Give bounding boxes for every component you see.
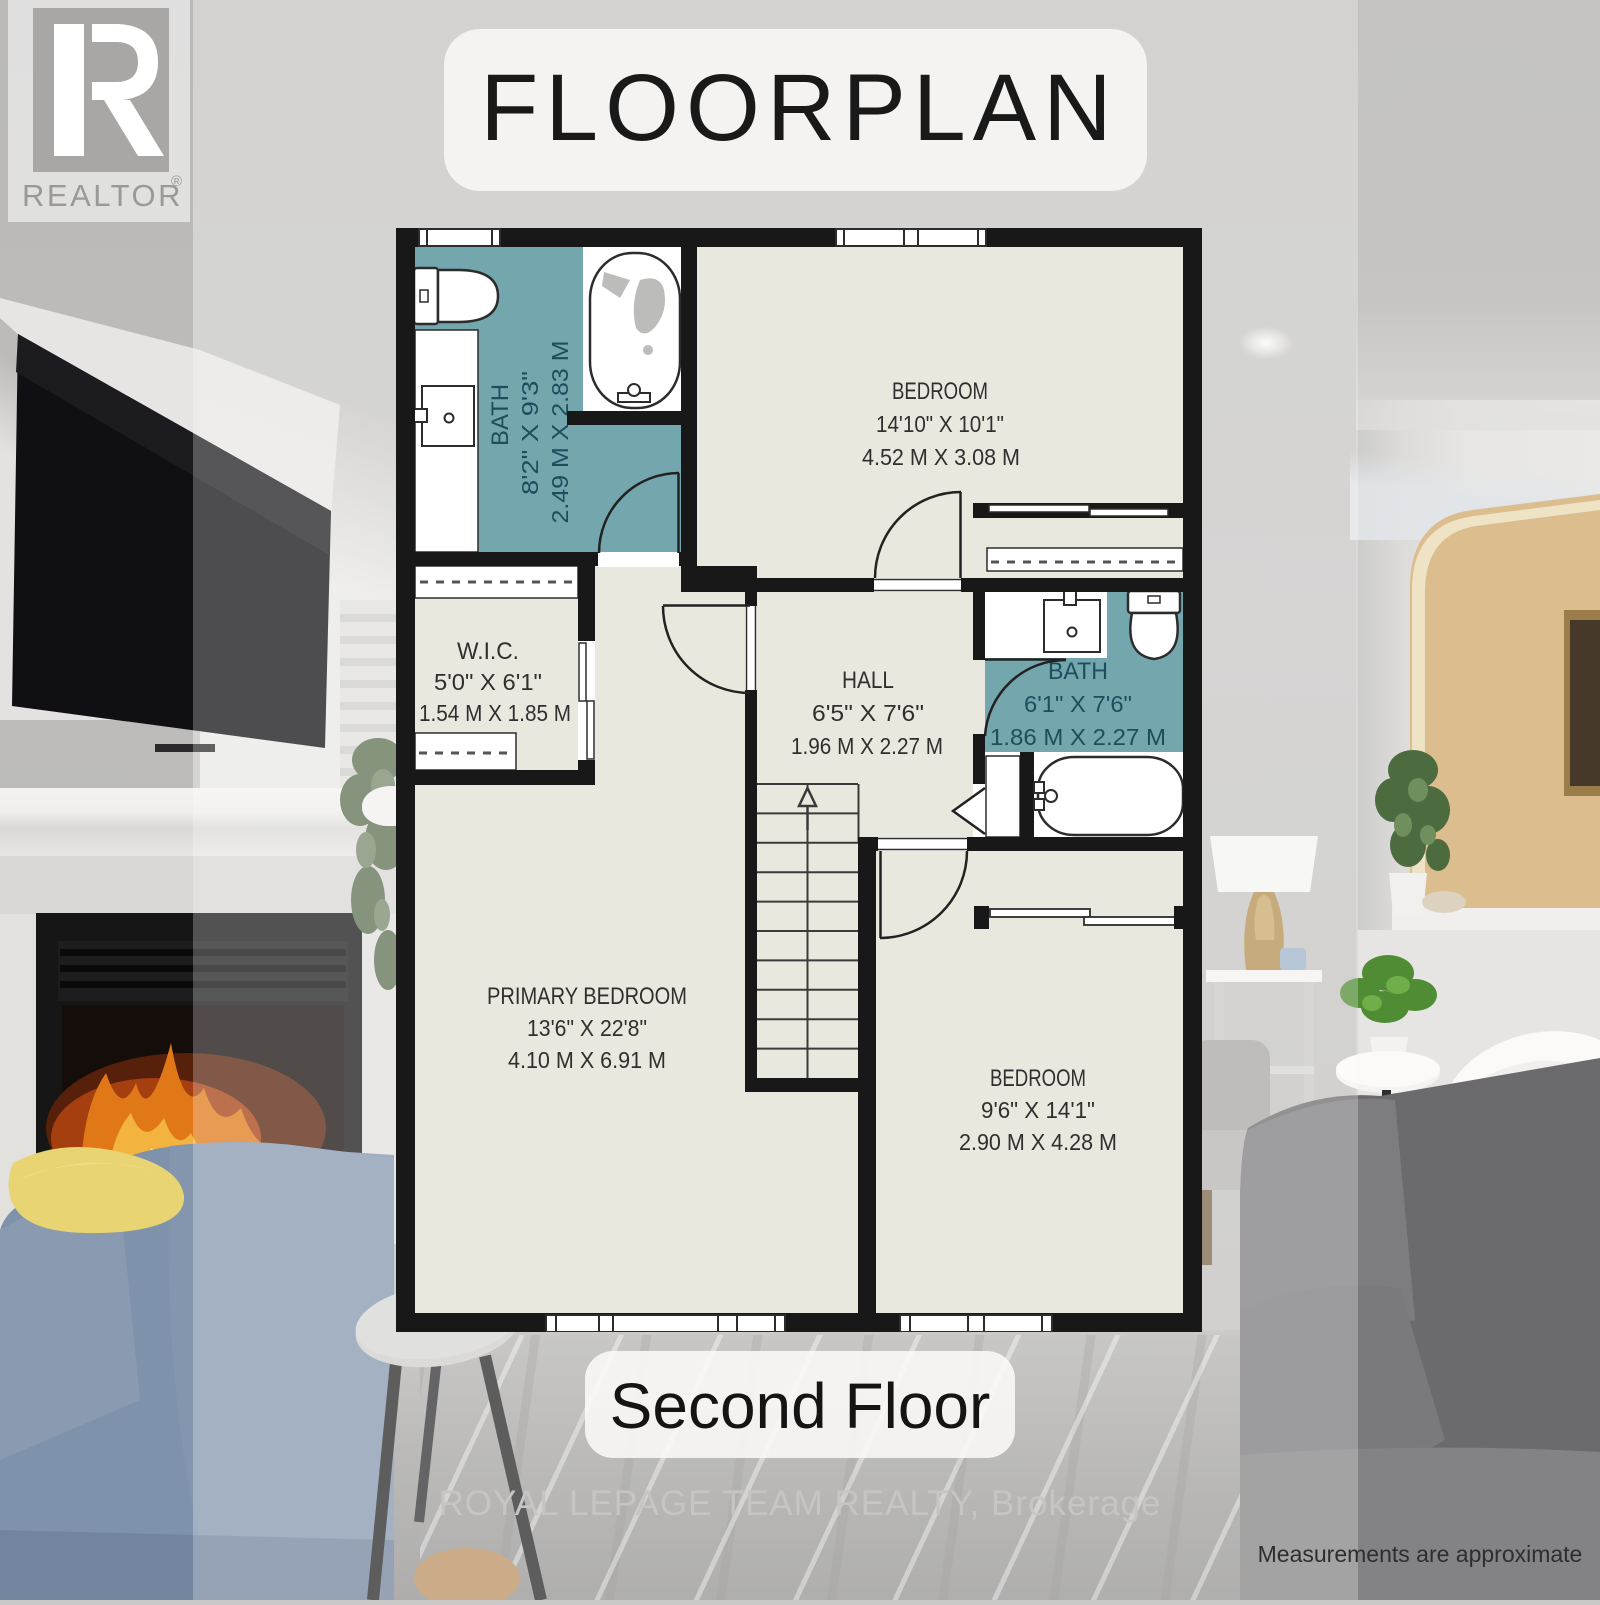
- svg-text:4.10 M X 6.91 M: 4.10 M X 6.91 M: [508, 1047, 666, 1073]
- svg-text:8'2" X 9'3": 8'2" X 9'3": [517, 371, 543, 495]
- svg-text:9'6" X 14'1": 9'6" X 14'1": [981, 1097, 1095, 1123]
- svg-text:HALL: HALL: [842, 667, 894, 694]
- svg-text:BEDROOM: BEDROOM: [892, 378, 988, 405]
- svg-text:BATH: BATH: [487, 384, 514, 446]
- svg-text:6'1" X 7'6": 6'1" X 7'6": [1024, 691, 1132, 717]
- svg-text:13'6" X 22'8": 13'6" X 22'8": [527, 1015, 647, 1041]
- svg-text:BEDROOM: BEDROOM: [990, 1065, 1086, 1092]
- svg-text:5'0" X 6'1": 5'0" X 6'1": [434, 669, 542, 695]
- svg-text:1.96 M X 2.27 M: 1.96 M X 2.27 M: [791, 733, 943, 759]
- svg-text:®: ®: [171, 173, 182, 190]
- svg-text:14'10" X 10'1": 14'10" X 10'1": [876, 411, 1004, 437]
- svg-text:REALTOR: REALTOR: [22, 178, 183, 213]
- svg-text:BATH: BATH: [1048, 658, 1108, 685]
- svg-text:2.49 M X 2.83 M: 2.49 M X 2.83 M: [547, 341, 573, 524]
- svg-text:2.90 M X 4.28 M: 2.90 M X 4.28 M: [959, 1129, 1117, 1155]
- svg-text:1.54 M X 1.85 M: 1.54 M X 1.85 M: [419, 700, 571, 726]
- svg-text:6'5" X 7'6": 6'5" X 7'6": [812, 700, 924, 726]
- svg-text:1.86 M X 2.27 M: 1.86 M X 2.27 M: [990, 724, 1166, 750]
- svg-text:4.52 M X 3.08 M: 4.52 M X 3.08 M: [862, 444, 1020, 470]
- svg-text:W.I.C.: W.I.C.: [457, 638, 519, 665]
- svg-text:PRIMARY BEDROOM: PRIMARY BEDROOM: [487, 983, 687, 1010]
